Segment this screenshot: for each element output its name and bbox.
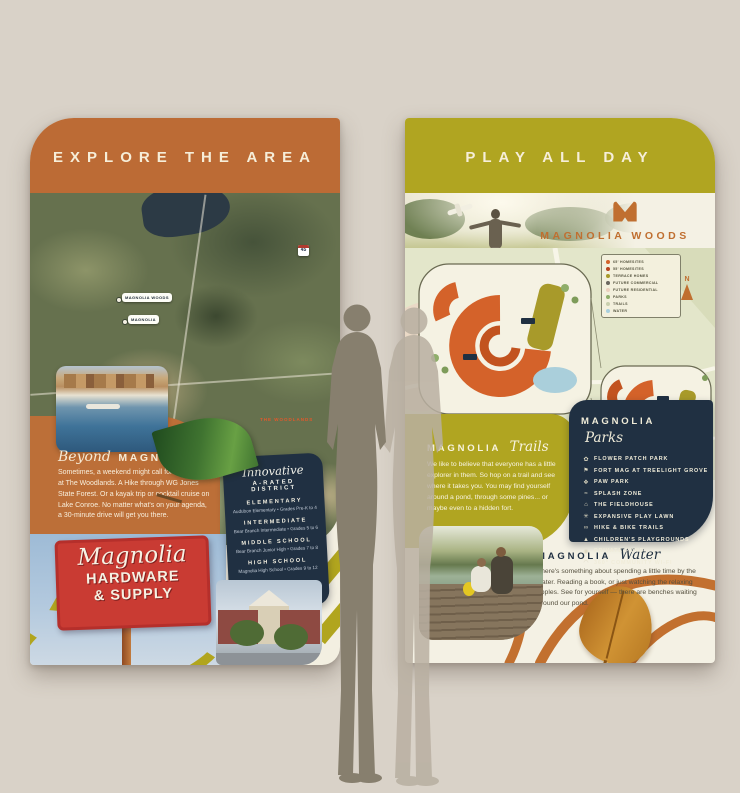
play-title: PLAY ALL DAY [405,118,715,166]
tree [274,624,308,650]
dock-planks [419,584,543,640]
pond-dock-photo [419,526,543,640]
hardware-sign-photo: Magnolia HARDWARE & SUPPLY [30,534,226,665]
hardware-signboard: Magnolia HARDWARE & SUPPLY [54,535,211,630]
playground-icon: ▲ [581,537,591,543]
wifi-icon: ◠ [581,559,591,566]
scene: MAGNOLIA WOODS MAGNOLIA 45 249 THE WOODL… [0,0,740,793]
parks-heading-caps: MAGNOLIA [581,416,655,427]
park-item: ◠360° COMMUNITY WI-FI [581,558,701,568]
map-dot [116,297,122,303]
legend-label: WATER [613,309,627,313]
bike-icon: ∞ [581,525,591,531]
map-marker-pill: MAGNOLIA [128,315,159,324]
school-ground [216,653,322,665]
park-item: ▲CHILDREN'S PLAYGROUNDS [581,535,701,545]
park-label: CHILDREN'S PLAYGROUNDS [594,537,689,543]
north-arrow-icon [681,284,693,300]
magnolia-logo [611,200,639,222]
north-arrow: N [681,276,693,300]
pond-icon: ◉ [581,548,591,555]
district-heading-caps: A-RATED DISTRICT [228,478,319,495]
beyond-heading-script: Beyond [58,449,111,465]
trails-body: We like to believe that everyone has a l… [427,460,567,514]
map-marker-pill: MAGNOLIA WOODS [122,293,172,302]
legend-dot [606,281,610,285]
tree [230,620,264,646]
photo-boat [86,404,120,409]
park-item: ❖PAW PARK [581,477,701,487]
park-label: THE FIELDHOUSE [594,502,654,508]
map-dot [122,319,128,325]
school-entry: INTERMEDIATE Bear Branch Intermediate • … [230,517,321,535]
park-label: FORT MAG AT TREELIGHT GROVE [594,468,708,474]
legend-dot [606,295,610,299]
high-school-photo [216,580,322,665]
woods-title: MAGNOLIA WOODS [523,230,707,242]
photo-buildings [64,374,154,388]
child-figure [471,566,491,592]
school-entry: MIDDLE SCHOOL Bear Branch Junior High • … [231,537,322,555]
water-body: There's something about spending a littl… [537,567,709,609]
park-item: ✿FLOWER PATCH PARK [581,454,701,464]
fort-flag-icon: ⚑ [581,467,591,474]
legend-label: TERRACE HOMES [613,274,648,278]
explore-banner: MAGNOLIA WOODS MAGNOLIA 45 249 THE WOODL… [30,118,340,665]
legend-dot [606,288,610,292]
park-item: ∞HIKE & BIKE TRAILS [581,523,701,533]
explore-title: EXPLORE THE AREA [30,118,340,166]
play-lawn-icon: ✳ [581,513,591,520]
splash-icon: ≈ [581,491,591,497]
park-item: ⌂THE FIELDHOUSE [581,500,701,510]
park-label: PRIVATE POND [594,548,644,554]
fieldhouse-icon: ⌂ [581,502,591,508]
legend-label: PARKS [613,295,627,299]
explore-header: EXPLORE THE AREA [30,118,340,193]
park-item: ◉PRIVATE POND [581,546,701,556]
park-label: EXPANSIVE PLAY LAWN [594,514,674,520]
child-figure [491,556,513,594]
play-header: PLAY ALL DAY [405,118,715,193]
legend-dot [606,309,610,313]
park-label: PAW PARK [594,479,629,485]
legend-dot [606,260,610,264]
map-legend: 65' HOMESITES 55' HOMESITES TERRACE HOME… [601,254,681,318]
park-item: ✳EXPANSIVE PLAY LAWN [581,512,701,522]
park-item: ⚑FORT MAG AT TREELIGHT GROVE [581,466,701,476]
park-label: FLOWER PATCH PARK [594,456,668,462]
park-label: HIKE & BIKE TRAILS [594,525,664,531]
trails-heading-script: Trails [510,439,549,455]
paw-icon: ❖ [581,479,591,486]
north-label: N [681,276,693,283]
waterway-photo [56,366,168,452]
school-gable [249,590,289,606]
parks-heading-script: Parks [585,430,623,446]
legend-label: 65' HOMESITES [613,260,644,264]
sign-script: Magnolia [58,540,207,571]
trails-heading-caps: MAGNOLIA [427,443,501,454]
legend-label: FUTURE COMMERCIAL [613,281,658,285]
parks-card: MAGNOLIA Parks ✿FLOWER PATCH PARK ⚑FORT … [569,400,713,542]
legend-label: FUTURE RESIDENTIAL [613,288,658,292]
legend-label: 55' HOMESITES [613,267,644,271]
park-item: ≈SPLASH ZONE [581,489,701,499]
play-banner: MAGNOLIA WOODS [405,118,715,663]
park-label: SPLASH ZONE [594,491,642,497]
flower-icon: ✿ [581,456,591,463]
legend-dot [606,302,610,306]
map-area-label: THE WOODLANDS [260,417,313,422]
legend-dot [606,274,610,278]
legend-label: TRAILS [613,302,628,306]
school-entry: ELEMENTARY Audubon Elementary • Grades P… [229,497,320,515]
legend-dot [606,267,610,271]
trails-heading: MAGNOLIA Trails [427,438,549,456]
highway-shield-icon: 45 [298,245,309,256]
school-entry: HIGH SCHOOL Magnolia High School • Grade… [233,557,324,575]
park-label: 360° COMMUNITY WI-FI [594,560,672,566]
